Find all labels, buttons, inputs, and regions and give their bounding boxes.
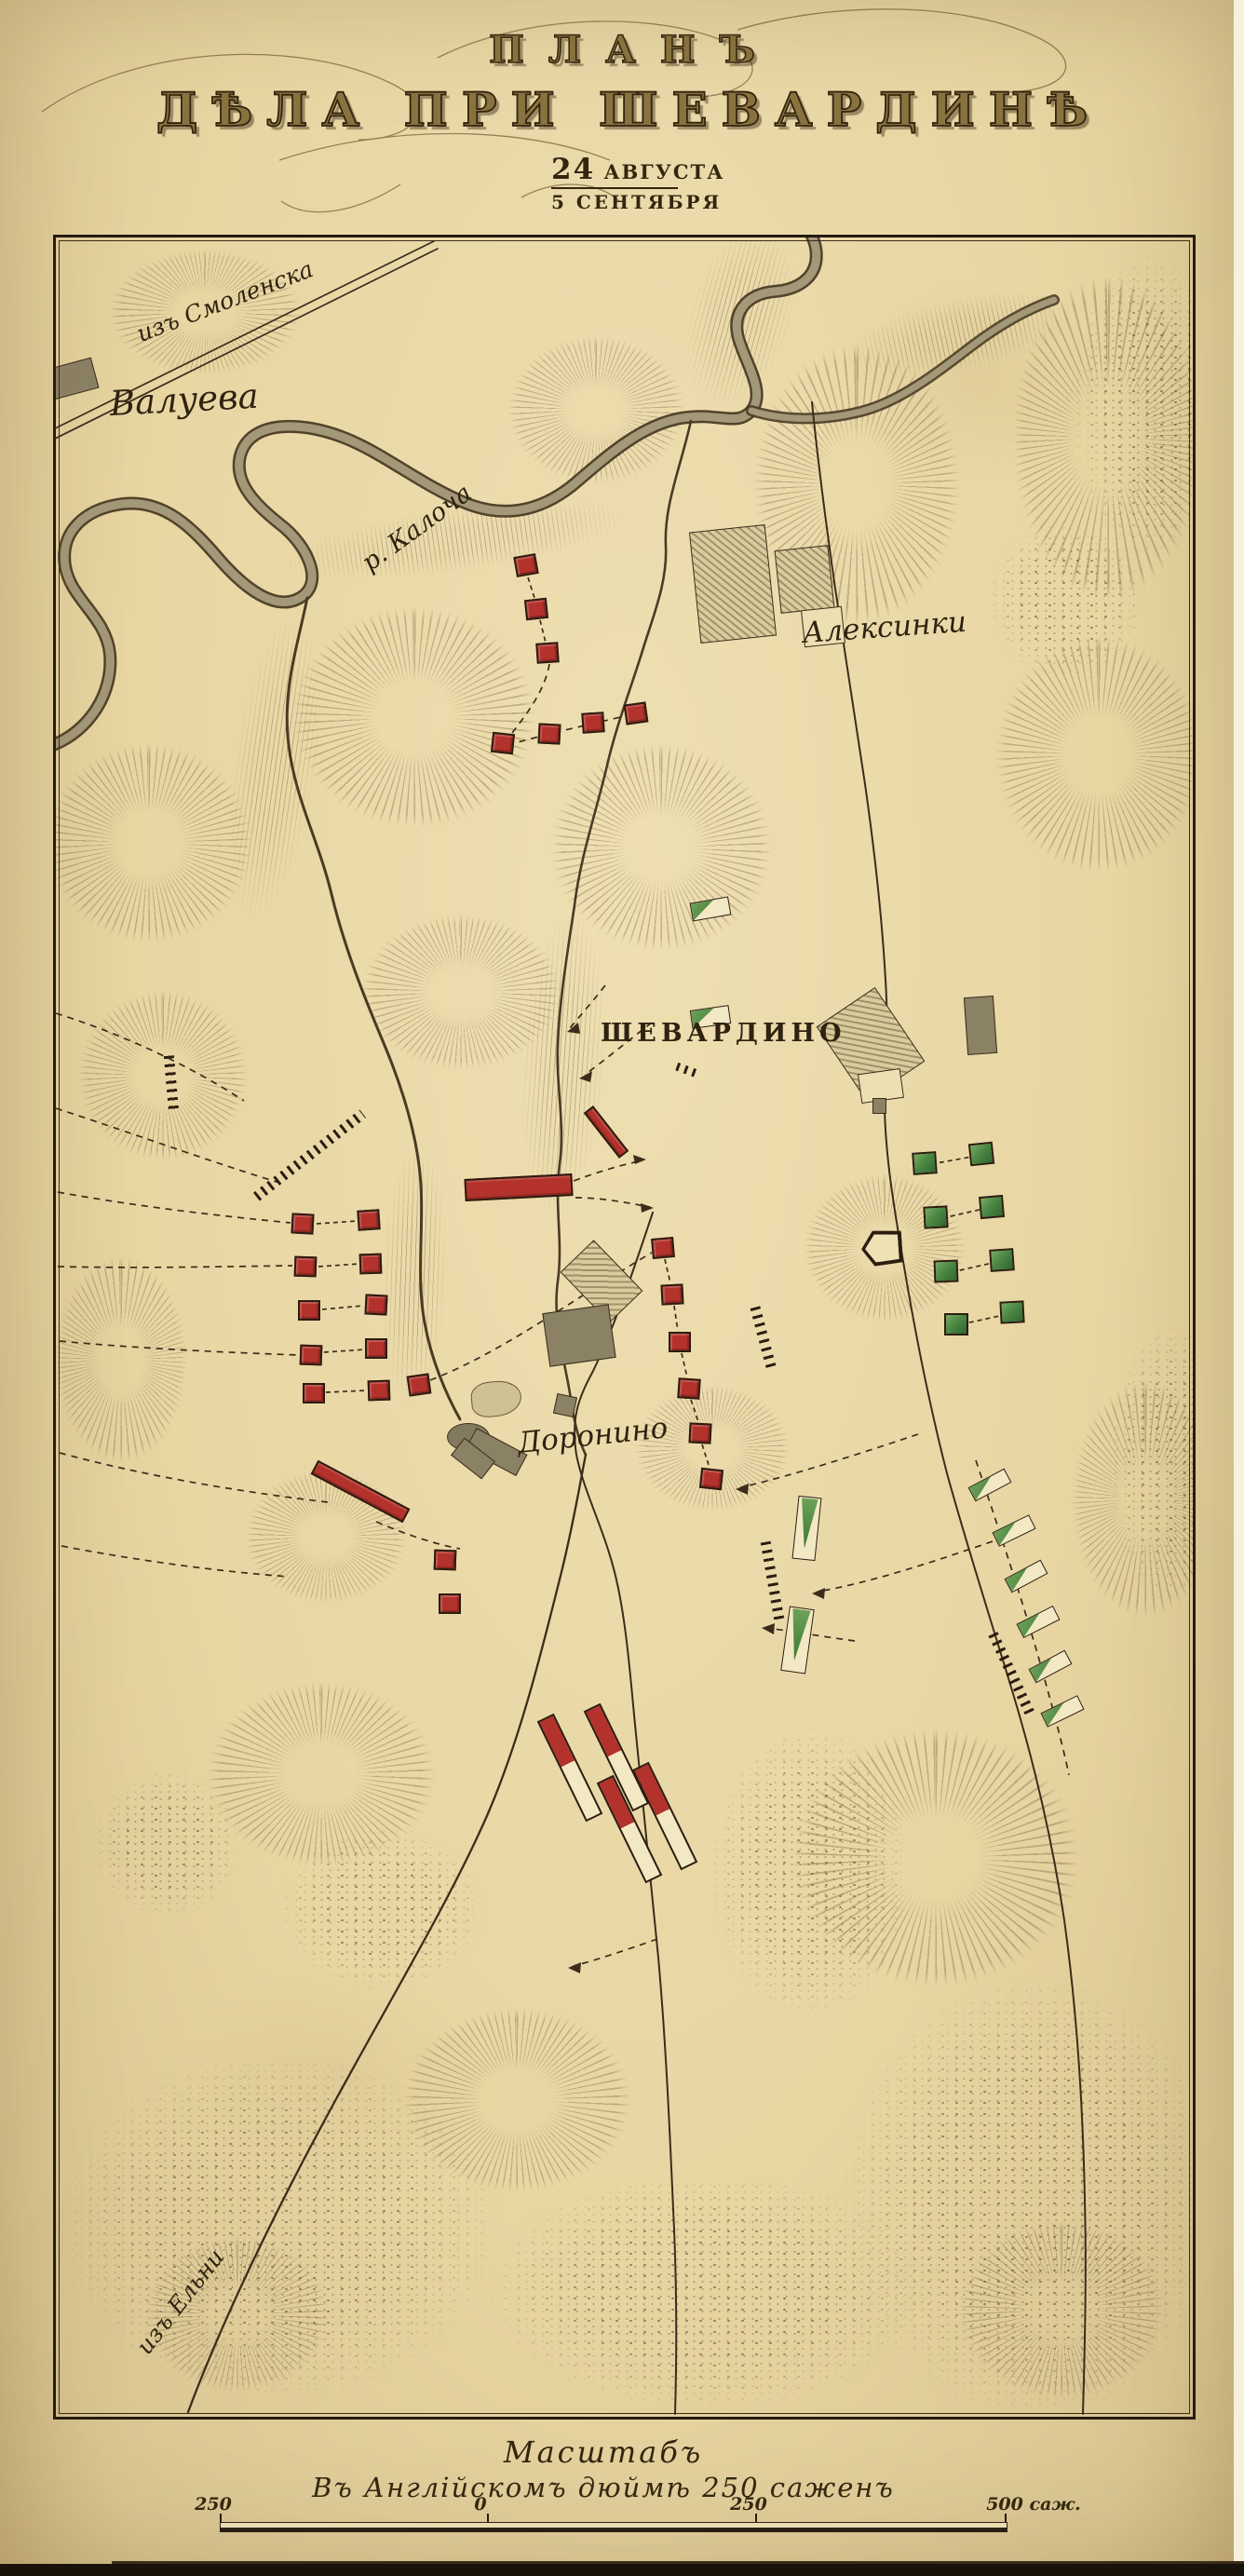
scanned-map-page: { "header": { "title_line1": "ПЛАНЪ", "t… bbox=[0, 0, 1244, 2576]
scale-tick-label: 0 bbox=[425, 2494, 536, 2515]
scan-edge-bottom bbox=[0, 2564, 1244, 2576]
scale-title: Масштабъ bbox=[0, 2434, 1207, 2470]
scale-bar-shadow bbox=[220, 2529, 1007, 2532]
map-canvas: изъ СмоленскаВалуевар. КалочаАлексинкиШЕ… bbox=[53, 235, 1196, 2420]
scale-block: Масштабъ Въ Англійскомъ дюймѣ 250 саженъ… bbox=[0, 2421, 1244, 2561]
page-title-line1: ПЛАНЪ bbox=[0, 28, 1244, 72]
map-frame: изъ СмоленскаВалуевар. КалочаАлексинкиШЕ… bbox=[53, 235, 1196, 2420]
label-from-elnya: изъ Ельни bbox=[131, 2244, 230, 2359]
place-labels-layer: изъ СмоленскаВалуевар. КалочаАлексинкиШЕ… bbox=[53, 235, 1196, 2420]
date-fraction: 24 АВГУСТА 5 СЕНТЯБРЯ bbox=[551, 153, 737, 213]
scale-tick-label: 250 bbox=[157, 2494, 269, 2515]
label-aleksinki: Алексинки bbox=[802, 605, 967, 650]
date-divider bbox=[551, 187, 678, 189]
label-valueva: Валуева bbox=[109, 376, 260, 424]
label-shevardino: ШЕВАРДИНО bbox=[601, 1019, 845, 1048]
label-kalocha: р. Калоча bbox=[357, 479, 478, 577]
page-title-line2: ДѢЛА ПРИ ШЕВАРДИНѢ bbox=[0, 82, 1244, 137]
label-from-smolensk: изъ Смоленска bbox=[133, 255, 317, 347]
date-new-style: 5 СЕНТЯБРЯ bbox=[551, 191, 737, 213]
scale-tick-label: 500 саж. bbox=[978, 2494, 1089, 2515]
date-old-style: 24 АВГУСТА bbox=[551, 153, 737, 186]
scale-tick-label: 250 bbox=[693, 2494, 805, 2515]
scan-edge-right bbox=[1234, 0, 1244, 2576]
map-title-block: ПЛАНЪ ДѢЛА ПРИ ШЕВАРДИНѢ 24 АВГУСТА 5 СЕ… bbox=[0, 0, 1244, 233]
scale-bar bbox=[220, 2522, 1007, 2529]
label-doronino: Доронино bbox=[516, 1411, 669, 1460]
